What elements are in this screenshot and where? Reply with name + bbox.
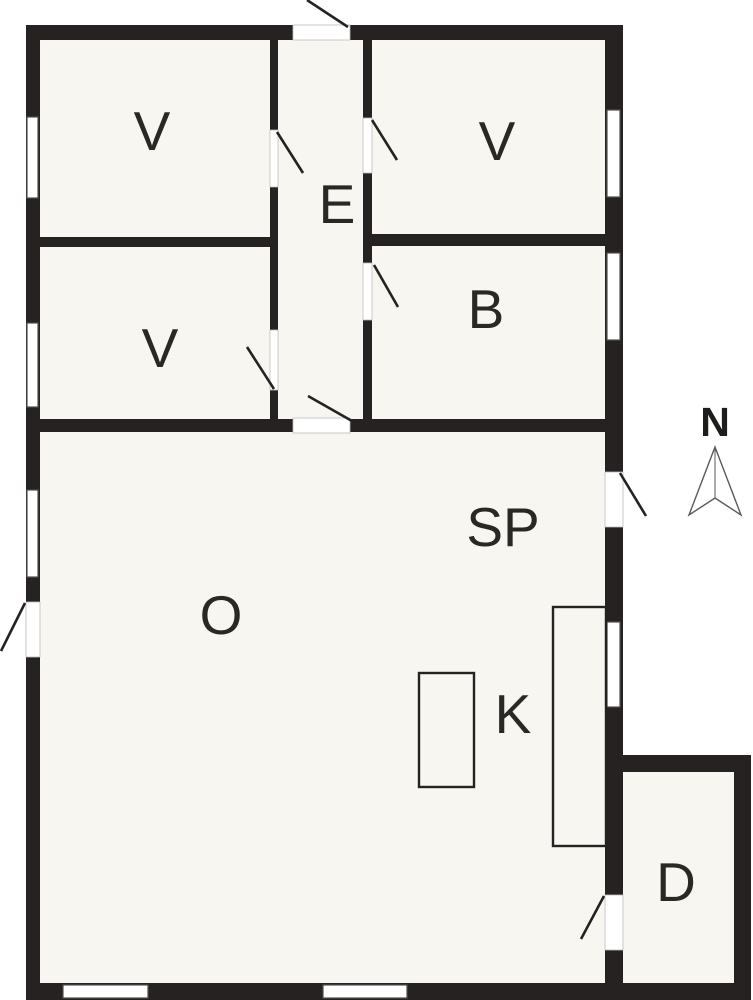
door-e-to-v-top-left (270, 130, 278, 187)
room-label-k: K (495, 683, 532, 745)
compass: N (689, 399, 741, 515)
room-label-v-bottom-left: V (142, 317, 179, 379)
window-right-top (607, 110, 620, 197)
window-right-bottom (607, 622, 620, 707)
door-sp-exterior-right (605, 472, 623, 527)
wall-left-v-divider (40, 237, 278, 247)
compass-north-label: N (700, 399, 730, 445)
room-label-v-top-left: V (134, 100, 171, 162)
floor-areas (26, 25, 751, 1000)
floor-plan-page: V V V B E SP O K D N (0, 0, 753, 1000)
room-label-e: E (319, 173, 356, 235)
wall-d-room-top (605, 755, 751, 772)
wall-v-b-divider (363, 234, 605, 246)
room-label-v-top-right: V (479, 110, 516, 172)
door-leaf-sp-exterior-right (620, 473, 646, 516)
wall-d-room-right (734, 755, 751, 1000)
room-label-b: B (468, 278, 505, 340)
window-left-top (27, 117, 38, 198)
door-e-to-v-bottom-left (270, 330, 278, 390)
door-leaf-main-entrance (307, 0, 348, 27)
door-leaf-o-exterior-left (1, 603, 25, 651)
door-o-exterior-left (26, 602, 40, 657)
door-sp-to-d (605, 895, 623, 950)
window-left-middle (27, 323, 38, 407)
floor-plan-canvas: V V V B E SP O K D N (0, 0, 753, 1000)
window-right-middle (607, 253, 620, 340)
window-bottom-left (63, 985, 148, 998)
kitchen-fixture-rect (419, 673, 474, 787)
room-label-o: O (200, 584, 243, 646)
door-main-entrance (293, 25, 350, 40)
door-e-to-o (293, 418, 350, 433)
window-bottom-middle (323, 985, 407, 998)
counter-rect (553, 607, 606, 846)
room-label-sp: SP (466, 496, 539, 558)
window-left-bottom (27, 490, 38, 577)
door-e-to-b (363, 263, 372, 320)
door-e-to-v-top-right (363, 118, 372, 173)
room-label-d: D (656, 851, 696, 913)
